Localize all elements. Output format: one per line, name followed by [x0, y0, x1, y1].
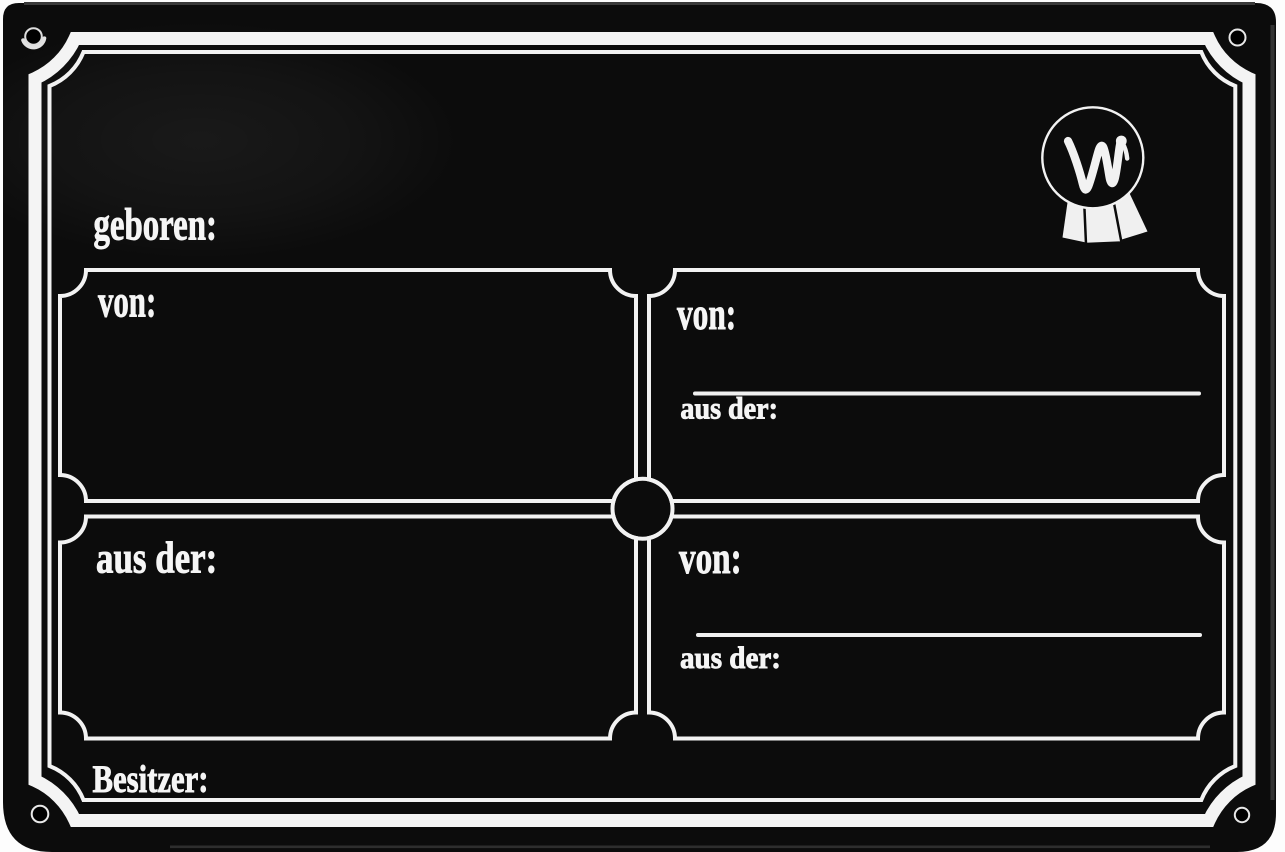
svg-text:von:: von:: [98, 278, 156, 327]
svg-text:von:: von:: [679, 533, 742, 583]
svg-text:von:: von:: [677, 290, 736, 340]
svg-text:aus der:: aus der:: [680, 640, 781, 675]
svg-text:geboren:: geboren:: [94, 200, 217, 250]
svg-text:aus der:: aus der:: [680, 392, 778, 426]
svg-text:aus der:: aus der:: [96, 534, 217, 583]
svg-text:Besitzer:: Besitzer:: [93, 757, 209, 800]
